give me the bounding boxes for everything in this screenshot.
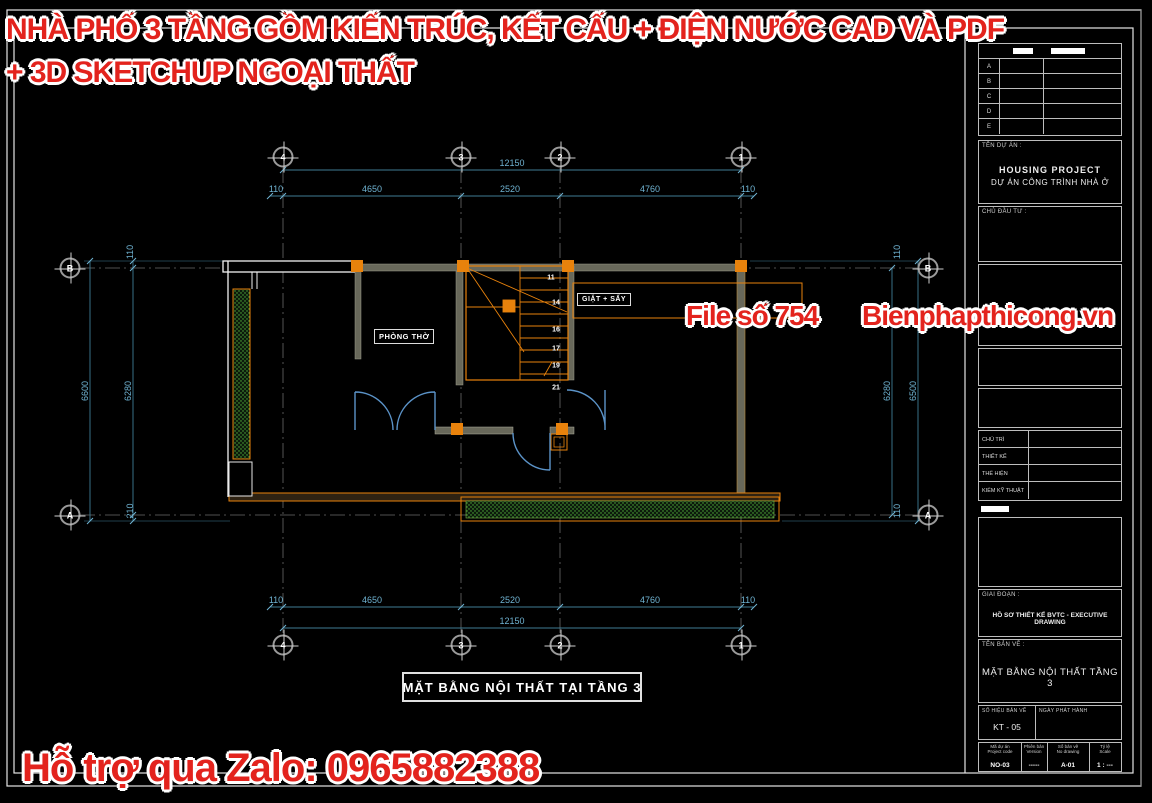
project-label: TÊN DỰ ÁN : (982, 143, 1022, 149)
watermark-title-line1: NHÀ PHỐ 3 TẦNG GỒM KIẾN TRÚC, KẾT CẤU + … (6, 8, 1004, 51)
canopy (223, 261, 357, 272)
titleblock-logo-strip (978, 503, 1122, 515)
issue-date-label: NGÀY PHÁT HÀNH (1039, 708, 1087, 714)
watermark-zalo-support: Hỗ trợ qua Zalo: 0965882388 (22, 746, 539, 791)
titleblock-phase: GIAI ĐOẠN : HỒ SƠ THIẾT KẾ BVTC - EXECUT… (978, 589, 1122, 637)
dim-top-seg: 110 (741, 184, 755, 194)
dim-bottom-seg: 4760 (640, 595, 660, 605)
watermark-site-url: Bienphapthicong.vn (862, 300, 1113, 332)
grid-bubble-2-bottom: 2 (550, 635, 571, 656)
staff-role: THIẾT KẾ (979, 448, 1029, 465)
grid-lines (80, 168, 925, 638)
dim-left-top: 110 (125, 245, 135, 259)
grid-bubble-B-left: B (60, 258, 81, 279)
dim-top-total: 12150 (499, 158, 524, 168)
footer-value-project-code: NO-03 (979, 762, 1021, 769)
footer-value-sheet: A-01 (1047, 762, 1089, 769)
dim-left-bottom: 210 (125, 503, 135, 518)
phase-label: GIAI ĐOẠN : (982, 592, 1020, 598)
stair-step-number: 14 (552, 300, 560, 307)
dim-top-seg: 4760 (640, 184, 660, 194)
double-door-right-leaf (397, 392, 435, 430)
stair-step-number: 16 (552, 327, 560, 334)
staff-role: THỂ HIỆN (979, 465, 1029, 482)
titleblock-blank-2 (978, 348, 1122, 386)
project-name-en: HOUSING PROJECT (979, 165, 1121, 175)
drawing-number-label: SỐ HIỆU BẢN VẼ (982, 708, 1027, 714)
dim-bottom-seg: 4650 (362, 595, 382, 605)
revision-row-letter: E (979, 119, 1000, 134)
titleblock-staff-table: CHỦ TRÌ THIẾT KẾ THỂ HIỆN KIỂM KỸ THUẬT (978, 430, 1122, 501)
grid-bubble-A-left: A (60, 505, 81, 526)
cad-sheet: { "colors": {"accent_red":"#e3231d","dim… (0, 0, 1152, 803)
footer-value-version: ----- (1021, 762, 1047, 769)
top-wall (357, 264, 745, 271)
footer-label: No drawing (1057, 749, 1080, 754)
grid-bubble-4-top: 4 (273, 147, 294, 168)
dim-right-outer: 6500 (908, 381, 918, 401)
room-label-giat-say: GIẶT + SẤY (577, 293, 631, 306)
revision-header-block (1013, 48, 1033, 54)
titleblock-number-row: SỐ HIỆU BẢN VẼ KT - 05 NGÀY PHÁT HÀNH (978, 705, 1122, 740)
dim-right-bottom: 110 (892, 504, 902, 518)
dim-left-outer: 6600 (80, 381, 90, 401)
dim-left-inner: 6280 (123, 381, 133, 401)
phase-value: HỒ SƠ THIẾT KẾ BVTC - EXECUTIVE DRAWING (979, 612, 1121, 626)
grid-bubble-A-right: A (918, 505, 939, 526)
titleblock-project: TÊN DỰ ÁN : HOUSING PROJECT DỰ ÁN CÔNG T… (978, 140, 1122, 204)
dim-right-inner: 6280 (882, 381, 892, 401)
dimension-lines (84, 170, 924, 628)
watermark-title-line2: + 3D SKETCHUP NGOẠI THẤT (6, 51, 1004, 94)
grid-bubble-1-top: 1 (731, 147, 752, 168)
logo-block (981, 506, 1009, 512)
dim-bottom-seg: 2520 (500, 595, 520, 605)
drawing-number-value: KT - 05 (979, 722, 1035, 732)
watermark-file-number: File số 754 (686, 300, 818, 332)
dim-bottom-total: 12150 (499, 616, 524, 626)
drawing-name-label: TÊN BẢN VẼ : (982, 642, 1025, 648)
sheet-frame (7, 10, 1141, 786)
dim-bottom-seg: 110 (269, 595, 283, 605)
stair-step-number: 19 (552, 363, 560, 370)
double-door-left-leaf (355, 392, 393, 430)
titleblock-drawing-name: TÊN BẢN VẼ : MẶT BẰNG NỘI THẤT TẦNG 3 (978, 639, 1122, 703)
project-name-vi: DỰ ÁN CÔNG TRÌNH NHÀ Ở (979, 178, 1121, 187)
dim-top-seg: 2520 (500, 184, 520, 194)
staff-role: CHỦ TRÌ (979, 431, 1029, 448)
dim-top-seg: 4650 (362, 184, 382, 194)
footer-label: Scale (1099, 749, 1110, 754)
grid-bubble-1-bottom: 1 (731, 635, 752, 656)
interior-wall (435, 427, 513, 434)
single-door-south (513, 433, 550, 470)
drawing-name-value: MẶT BẰNG NỘI THẤT TẦNG 3 (979, 667, 1121, 689)
titleblock-footer-table: Mã dự ánProject code NO-03 Phiên bảnVers… (978, 742, 1122, 772)
stair-step-number: 17 (552, 346, 560, 353)
revision-row-letter: D (979, 104, 1000, 119)
grid-bubble-2-top: 2 (550, 147, 571, 168)
room-label-phong-tho: PHÒNG THỜ (374, 329, 434, 344)
revision-header-block (1051, 48, 1085, 54)
titleblock-investor: CHỦ ĐẦU TƯ : (978, 206, 1122, 262)
grid-bubble-B-right: B (918, 258, 939, 279)
stair-step-number: 11 (547, 275, 554, 282)
plan-caption: MẶT BẰNG NỘI THẤT TẠI TẦNG 3 (402, 672, 642, 702)
dimension-ticks (87, 167, 921, 631)
stair-step-number: 21 (552, 385, 560, 392)
staff-role: KIỂM KỸ THUẬT (979, 482, 1029, 499)
grid-bubble-4-bottom: 4 (273, 635, 294, 656)
grid-bubble-3-bottom: 3 (451, 635, 472, 656)
columns (351, 260, 747, 435)
dim-bottom-seg: 110 (741, 595, 755, 605)
titleblock-blank-3 (978, 388, 1122, 428)
footer-label: Project code (987, 749, 1012, 754)
investor-label: CHỦ ĐẦU TƯ : (982, 209, 1027, 215)
footer-value-scale: 1 : --- (1089, 762, 1121, 769)
footer-label: Version (1026, 749, 1041, 754)
grid-bubble-3-top: 3 (451, 147, 472, 168)
dim-right-top: 110 (892, 245, 902, 259)
titleblock-blank-4 (978, 517, 1122, 587)
single-door-east (567, 390, 605, 430)
watermark-title: NHÀ PHỐ 3 TẦNG GỒM KIẾN TRÚC, KẾT CẤU + … (6, 8, 1004, 94)
dim-top-seg: 110 (269, 184, 283, 194)
